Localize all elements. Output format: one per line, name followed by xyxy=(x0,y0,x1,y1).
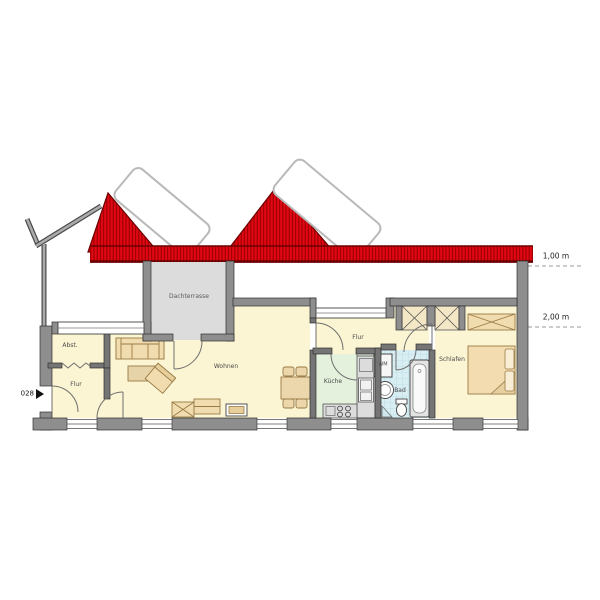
wall xyxy=(375,348,381,418)
wall xyxy=(416,344,432,350)
wall xyxy=(390,298,517,306)
tv-lowboard-icon xyxy=(226,404,247,416)
wall xyxy=(381,344,396,350)
wall xyxy=(143,334,173,341)
wall xyxy=(287,418,331,430)
wall xyxy=(429,350,435,418)
wall xyxy=(310,298,316,318)
wall xyxy=(104,368,110,399)
room-label-schlafen: Schlafen xyxy=(439,357,465,363)
unit-pointer-icon xyxy=(36,389,44,399)
left-roof-edge xyxy=(27,206,101,326)
wall xyxy=(427,306,435,326)
wall xyxy=(310,318,316,323)
wall xyxy=(33,418,67,430)
floorplan-drawing xyxy=(0,0,600,600)
fixture-label-wm: WM xyxy=(378,363,387,368)
roof-band xyxy=(90,246,533,262)
sideboard-icon xyxy=(172,399,220,417)
wall xyxy=(201,334,234,341)
wardrobe-icon xyxy=(468,314,515,330)
wall xyxy=(48,363,62,368)
room-label-flur-links: Flur xyxy=(70,382,81,388)
wall xyxy=(172,418,257,430)
height-label-1m: 1,00 m xyxy=(543,252,569,260)
window-band-top-hall xyxy=(316,308,386,318)
roof-elevation xyxy=(88,157,533,262)
wall xyxy=(459,306,465,330)
room-label-wohnen: Wohnen xyxy=(214,364,238,370)
wall xyxy=(310,350,316,418)
room-label-abstellraum: Abst. xyxy=(62,343,77,349)
bathtub-icon xyxy=(410,360,429,417)
height-label-2m: 2,00 m xyxy=(543,313,569,321)
room-label-kueche: Küche xyxy=(324,379,342,385)
unit-number: 028 xyxy=(21,391,34,398)
bed-icon xyxy=(468,346,515,394)
wall xyxy=(453,418,483,430)
wall xyxy=(517,261,528,430)
window-band-top-storage xyxy=(58,322,144,334)
wall xyxy=(357,418,413,430)
wall xyxy=(40,326,52,386)
room-floor-terrace xyxy=(143,262,233,340)
room-floor-living-top xyxy=(233,306,310,334)
room-label-bad: Bad xyxy=(394,388,406,394)
wall xyxy=(104,334,110,368)
room-label-flur-rechts: Flur xyxy=(352,335,363,341)
wall xyxy=(396,306,402,330)
room-label-dachterrasse: Dachterrasse xyxy=(169,294,209,300)
toilet-icon xyxy=(396,399,407,416)
wall xyxy=(233,298,316,306)
wall xyxy=(97,418,142,430)
wall xyxy=(52,322,58,334)
floorplan-page: Dachterrasse Abst. Flur Wohnen Flur Küch… xyxy=(0,0,600,600)
